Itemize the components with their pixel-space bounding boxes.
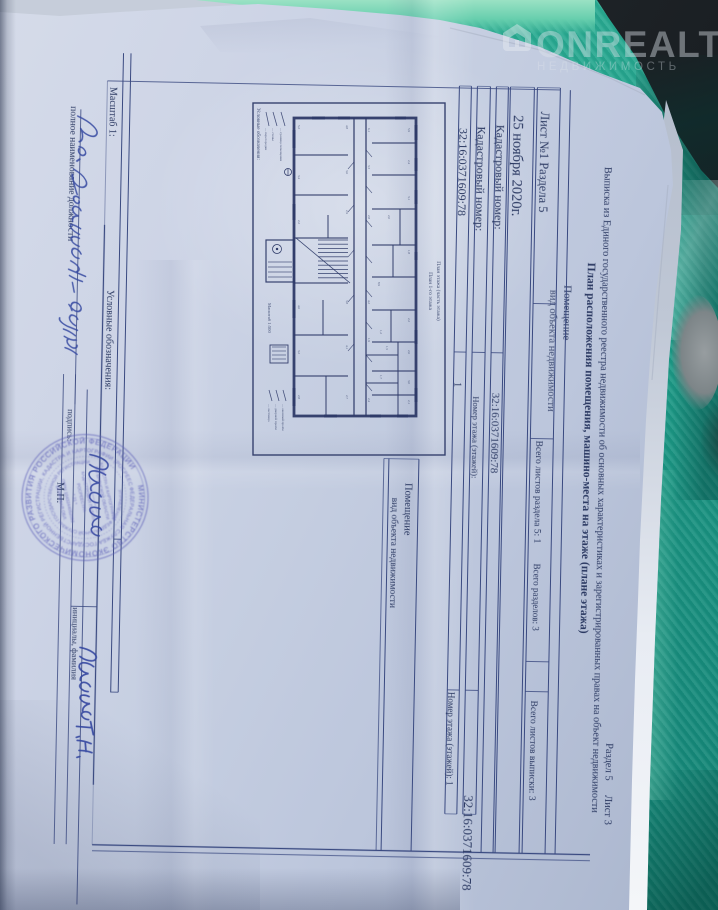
svg-text:ONREALT: ONREALT	[536, 24, 718, 65]
svg-text:НЕДВИЖИМОСТЬ: НЕДВИЖИМОСТЬ	[537, 61, 680, 73]
